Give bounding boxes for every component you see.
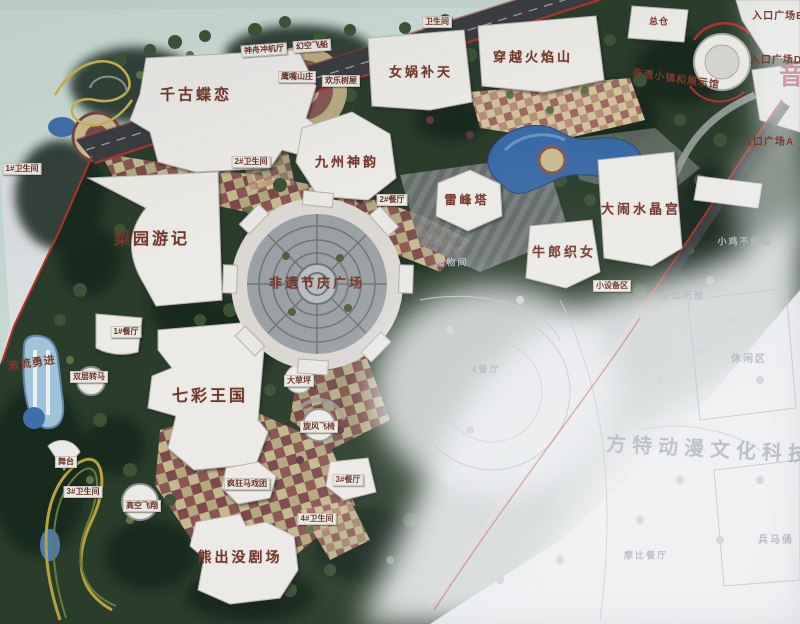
ji-liu-yong-jin-label: 激流勇进 xyxy=(7,355,56,373)
wu-tai-label: 舞台 xyxy=(55,456,77,468)
restroom-3-label: 3#卫生间 xyxy=(64,486,103,498)
restaurant-2-label: 2#餐厅 xyxy=(377,194,408,206)
shuang-ceng-zhuan-ma-label: 双层转马 xyxy=(70,371,108,383)
huan-le-shu-wu-label: 欢乐树屋 xyxy=(322,75,360,87)
labels-layer: 千古蝶恋女娲补天穿越火焰山九州神韵雷峰塔大闹水晶宫牛郎织女梨园游记非遗节庆广场七… xyxy=(0,0,800,624)
bing-ma-yong-label: 兵马俑 xyxy=(758,536,794,546)
mo-bi-li-xian-label: 摩比历险 xyxy=(661,292,705,301)
music-sign-label: 音 xyxy=(779,65,800,89)
restroom-1-label: 1#卫生间 xyxy=(3,163,42,175)
chu-wu-jian-label: 储物间 xyxy=(435,259,468,268)
entrance-plaza-e-label: 入口广场E xyxy=(752,12,800,22)
xiong-chu-mo-ju-chang-label: 熊出没剧场 xyxy=(198,550,283,564)
feng-kuang-ma-xi-tuan-label: 疯狂马戏团 xyxy=(224,478,270,490)
restroom-4-label: 4#卫生间 xyxy=(298,513,337,525)
entrance-plaza-a-label: 入口广场A xyxy=(742,138,794,148)
zong-cang-label: 总仓 xyxy=(649,18,669,27)
niu-lang-zhi-nv-label: 牛郎织女 xyxy=(532,246,596,259)
park-map-photo: 千古蝶恋女娲补天穿越火焰山九州神韵雷峰塔大闹水晶宫牛郎织女梨园游记非遗节庆广场七… xyxy=(0,0,800,624)
restaurant-3-label: 3#餐厅 xyxy=(333,474,364,486)
nv-wa-bu-tian-label: 女娲补天 xyxy=(389,66,453,79)
xuan-feng-fei-yi-label: 旋风飞椅 xyxy=(300,421,338,433)
gao-kong-fei-xiang-label: 高空飞翔 xyxy=(123,500,161,512)
park-watermark-label: 方特动漫文化科技 xyxy=(606,435,800,466)
xiu-xian-qu-label: 休闲区 xyxy=(731,355,767,365)
mo-bi-can-ting-label: 摩比餐厅 xyxy=(624,552,668,561)
lei-feng-ta-label: 雷峰塔 xyxy=(444,194,489,206)
fei-yi-jie-qing-guang-chang-label: 非遗节庆广场 xyxy=(269,277,365,290)
restroom-2-label: 2#卫生间 xyxy=(232,156,271,168)
xiao-she-bei-qu-label: 小设备区 xyxy=(593,280,631,292)
huan-kong-fei-chuan-label: 幻空飞船 xyxy=(293,39,332,54)
restroom-top-label: 卫生间 xyxy=(422,16,452,28)
shen-zhou-chong-ji-ting-label: 神舟冲机厅 xyxy=(241,42,288,57)
restaurant-4-faint-label: 4餐厅 xyxy=(471,366,500,375)
qian-gu-die-lian-label: 千古蝶恋 xyxy=(160,88,232,103)
li-yuan-you-ji-label: 梨园游记 xyxy=(114,232,190,248)
fei-yi-xiao-zhen-label: 非遗小镇和展示馆 xyxy=(632,69,721,91)
da-nao-shui-jing-gong-label: 大闹水晶宫 xyxy=(601,203,681,216)
ying-zui-shan-zhuang-label: 鹰嘴山庄 xyxy=(278,71,316,83)
chuan-yue-huo-yan-shan-label: 穿越火焰山 xyxy=(493,51,573,64)
qi-cai-wang-guo-label: 七彩王国 xyxy=(172,389,248,405)
xiao-ji-bu-hao-re-label: 小鸡不好惹 xyxy=(717,238,772,247)
jiu-zhou-shen-yun-label: 九州神韵 xyxy=(315,156,379,169)
da-cao-ping-label: 大草坪 xyxy=(284,375,314,387)
restaurant-1-label: 1#餐厅 xyxy=(111,326,142,338)
